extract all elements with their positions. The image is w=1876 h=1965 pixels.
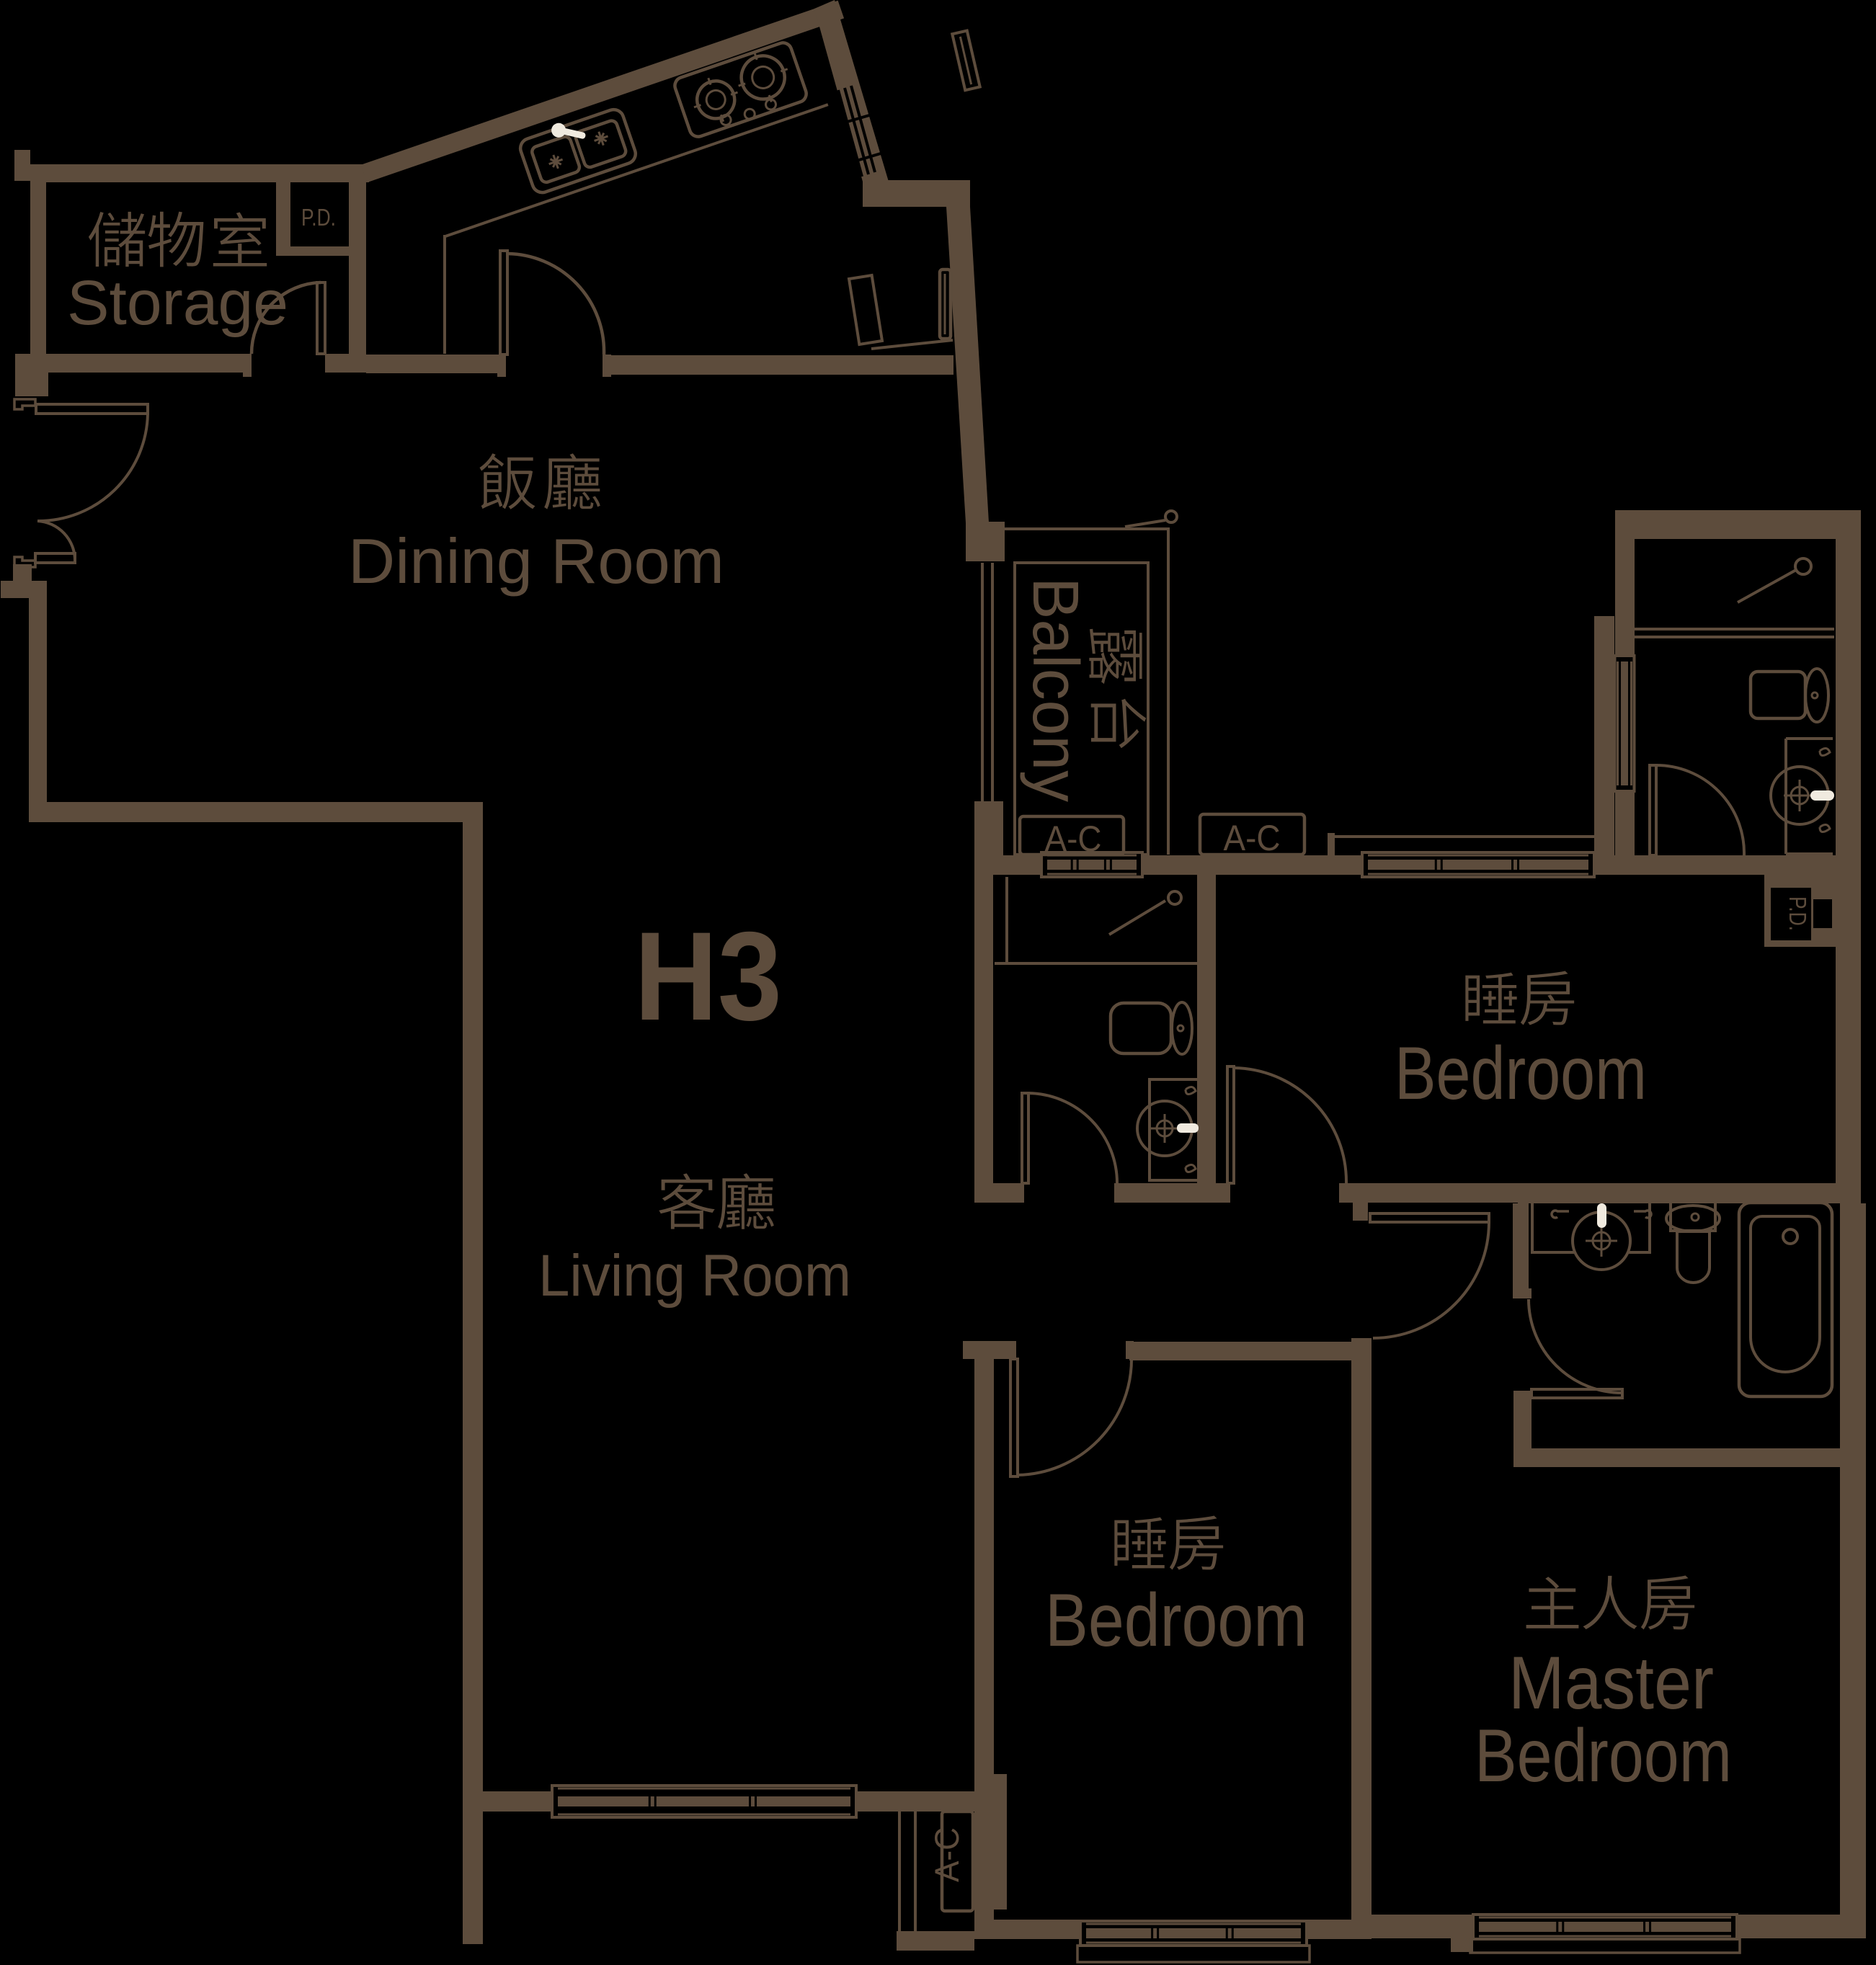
svg-text:Master: Master xyxy=(1508,1641,1714,1725)
svg-text:Balcony: Balcony xyxy=(1019,577,1091,802)
svg-text:Dining Room: Dining Room xyxy=(348,525,724,597)
svg-text:A-C: A-C xyxy=(928,1827,966,1882)
svg-text:Bedroom: Bedroom xyxy=(1395,1032,1647,1115)
svg-text:Living Room: Living Room xyxy=(538,1243,851,1309)
svg-text:Bedroom: Bedroom xyxy=(1045,1579,1307,1662)
svg-text:A-C: A-C xyxy=(1224,818,1281,858)
svg-text:Bedroom: Bedroom xyxy=(1475,1714,1732,1798)
svg-text:P.D.: P.D. xyxy=(301,204,336,231)
svg-text:A-C: A-C xyxy=(1045,819,1102,859)
svg-text:Storage: Storage xyxy=(67,268,288,338)
svg-text:H3: H3 xyxy=(634,906,782,1047)
svg-text:P.D.: P.D. xyxy=(1784,896,1811,931)
